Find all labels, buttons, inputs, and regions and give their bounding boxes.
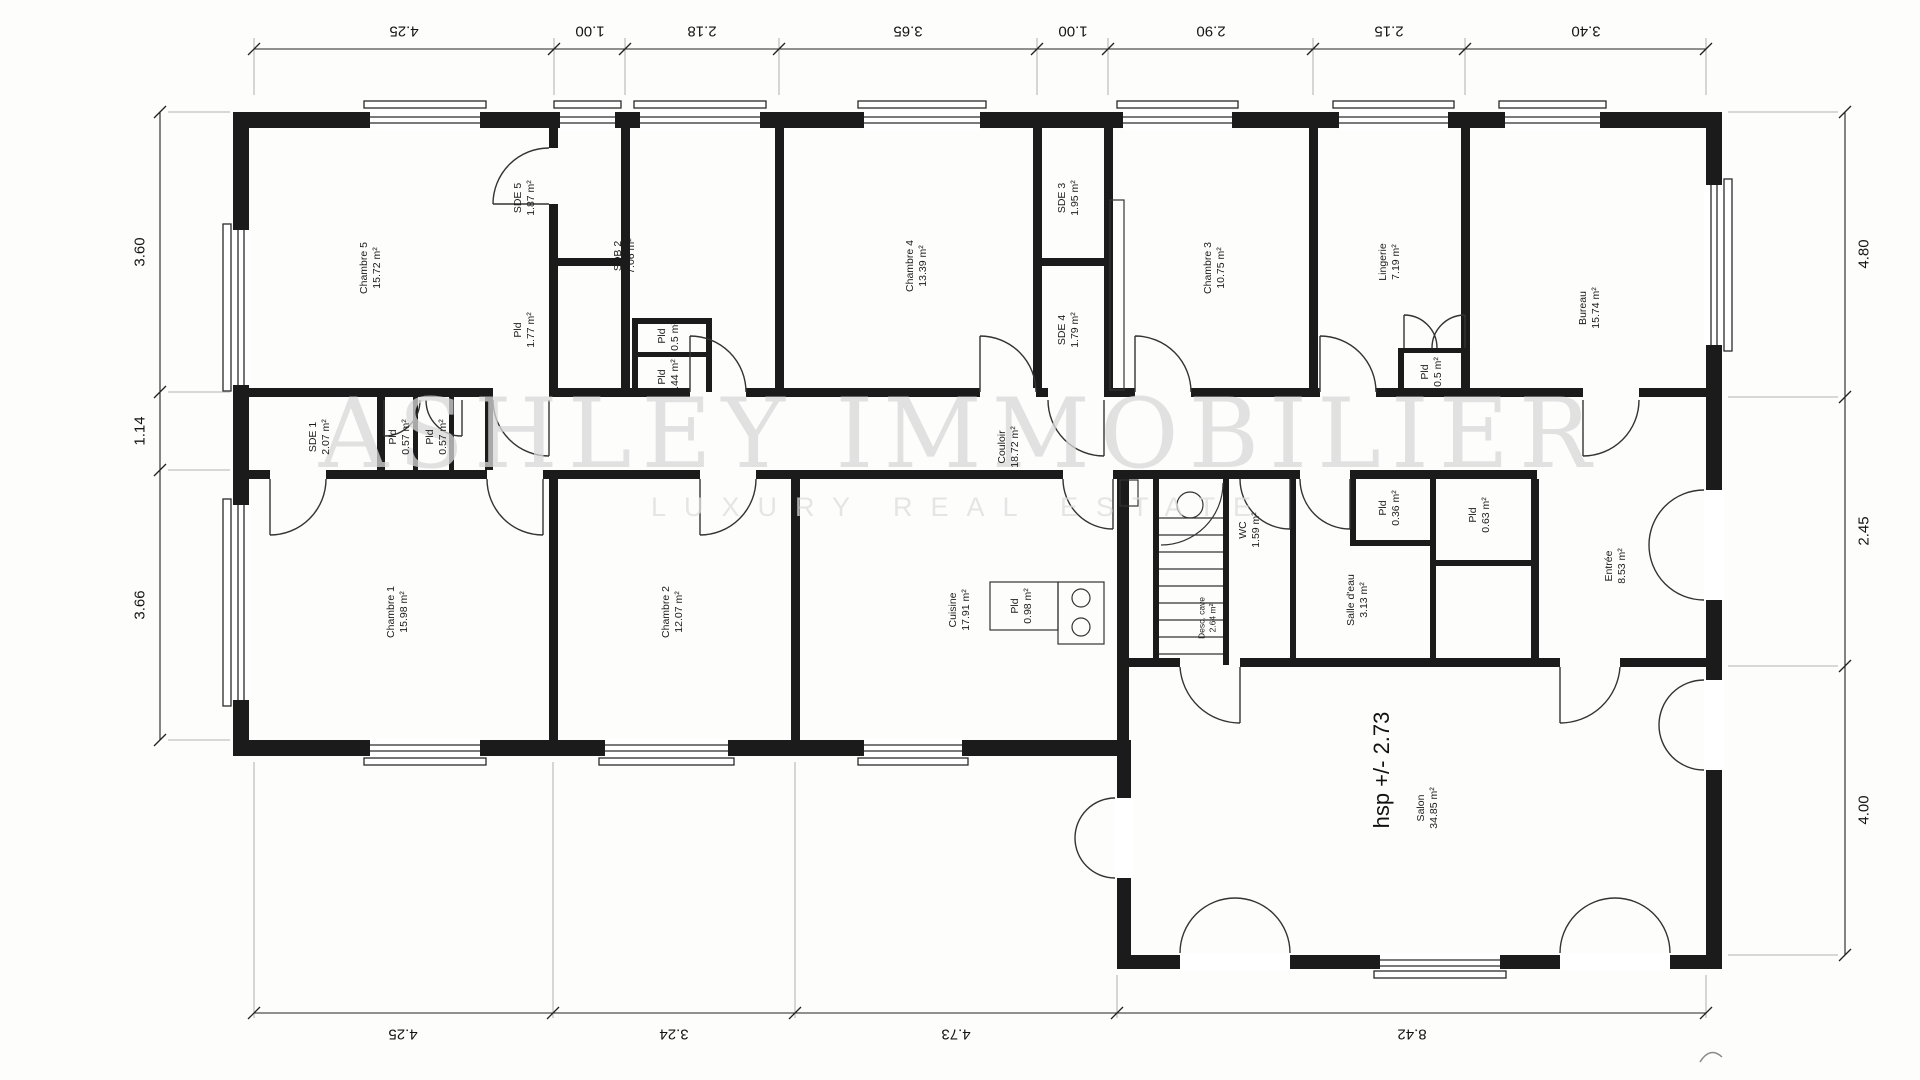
room-label-sde3: SDE 31.95 m² [1056,180,1082,216]
window-top-5 [1117,101,1238,130]
room-label-pld-05a: Pld0.5 m² [656,321,682,351]
room-label-salle-deau: Salle d'eau3.13 m² [1345,574,1371,626]
room-label-desc-cave: Desc. cave2.64 m² [1196,597,1217,639]
room-label-entree: Entrée8.53 m² [1603,548,1629,584]
windows [223,101,1732,978]
door-chambre3 [1135,336,1191,392]
door-salle-deau [1300,479,1350,529]
room-label-lingerie: Lingerie7.19 m² [1377,243,1403,280]
room-label-chambre2: Chambre 212.07 m² [660,586,686,638]
room-label-pld-044: Pld0.44 m² [656,359,682,395]
room-label-chambre5: Chambre 515.72 m² [358,242,384,294]
room-label-salon: Salon34.85 m² [1415,787,1441,828]
door-cuisine [1063,479,1113,529]
room-label-sdb2: SDB 27.06 m² [612,238,638,274]
walls [233,112,1722,969]
window-left-1 [223,224,251,391]
door-chambre4 [980,336,1036,392]
door-entree-entry [1649,490,1704,600]
dim-chain-lines [160,49,1845,1013]
dim-right-3: 4.00 [1856,795,1873,824]
window-top-1 [364,101,486,130]
door-bureau [1583,400,1639,456]
dim-top-7: 2.15 [1374,23,1403,40]
room-label-pld-057b: Pld0.57 m² [424,419,450,455]
door-entree-salon [1560,667,1620,723]
dim-top-5: 1.00 [1058,23,1087,40]
window-top-4 [858,101,986,130]
room-label-pld-098: Pld0.98 m² [1009,588,1035,624]
window-bottom-2 [599,738,734,765]
door-sde4-corridor [1048,400,1104,456]
room-label-pld-063: Pld0.63 m² [1467,497,1493,533]
floorplan-sheet: ASHLEY IMMOBILIER LUXURY REAL ESTATE Cha… [0,0,1920,1080]
room-label-cuisine: Cuisine17.91 m² [947,589,973,630]
dim-left-1: 3.60 [132,237,149,266]
window-top-3 [634,101,766,130]
fixtures [990,200,1138,644]
window-left-2 [223,499,251,706]
floorplan-drawing [0,0,1920,1080]
window-top-6 [1333,101,1454,130]
window-bottom-3 [858,738,968,765]
door-sdb2 [690,336,746,392]
door-salon-bottom-2 [1560,898,1670,953]
dim-bottom-4: 8.42 [1397,1026,1426,1043]
door-chambre1-b [487,479,543,535]
door-lingerie [1320,336,1376,392]
dim-bottom-1: 4.25 [388,1026,417,1043]
room-label-pld-036: Pld0.36 m² [1377,490,1403,526]
dim-left-3: 3.66 [132,590,149,619]
door-pld-corridor [493,400,549,456]
dim-right-2: 2.45 [1856,516,1873,545]
window-top-2 [554,101,621,130]
dim-bottom-2: 3.24 [659,1026,688,1043]
window-right-1 [1704,179,1732,351]
dim-bottom-3: 4.73 [941,1026,970,1043]
door-salon-hall [1180,667,1240,723]
dim-top-8: 3.40 [1571,23,1600,40]
kitchen-appliance-column [1058,582,1104,644]
dim-top-4: 3.65 [893,23,922,40]
stair-newel-circle [1177,492,1203,518]
room-label-sde1: SDE 12.07 m² [307,419,333,455]
window-salon-bottom [1374,953,1506,978]
door-chambre1-a [270,479,326,535]
door-salon-right [1659,680,1704,770]
dimension-lines [154,38,1851,1019]
room-label-chambre1: Chambre 115.98 m² [385,586,411,638]
room-label-pld-057a: Pld0.57 m² [387,419,413,455]
room-label-sde4: SDE 41.79 m² [1056,312,1082,348]
dim-top-1: 4.25 [389,23,418,40]
ceiling-height-note: hsp +/- 2.73 [1369,712,1395,829]
room-label-bureau: Bureau15.74 m² [1577,287,1603,328]
door-swings [270,148,1704,953]
dim-top-6: 2.90 [1196,23,1225,40]
dim-right-1: 4.80 [1856,239,1873,268]
window-top-7 [1499,101,1606,130]
window-bottom-1 [364,738,486,765]
dim-left-2: 1.14 [132,416,149,445]
corner-scan-mark [1700,1053,1722,1062]
room-label-chambre4: Chambre 413.39 m² [904,240,930,292]
room-label-couloir: Couloir18.72 m² [996,426,1022,467]
witness-lines [168,38,1838,1018]
room-label-sde5: SDE 51.87 m² [512,180,538,216]
door-chambre2 [700,479,756,535]
room-label-pld-177: Pld1.77 m² [512,312,538,348]
door-openings [1115,490,1724,971]
room-label-pld-05b: Pld0.5 m² [1419,357,1445,387]
dim-top-3: 2.18 [687,23,716,40]
door-salon-left [1075,798,1115,878]
dim-ticks [154,43,1851,1019]
dim-top-2: 1.00 [575,23,604,40]
room-label-wc: WC1.59 m² [1237,512,1263,548]
room-label-chambre3: Chambre 310.75 m² [1202,242,1228,294]
door-salon-bottom-1 [1180,898,1290,953]
door-lingerie-closet [1404,315,1465,348]
